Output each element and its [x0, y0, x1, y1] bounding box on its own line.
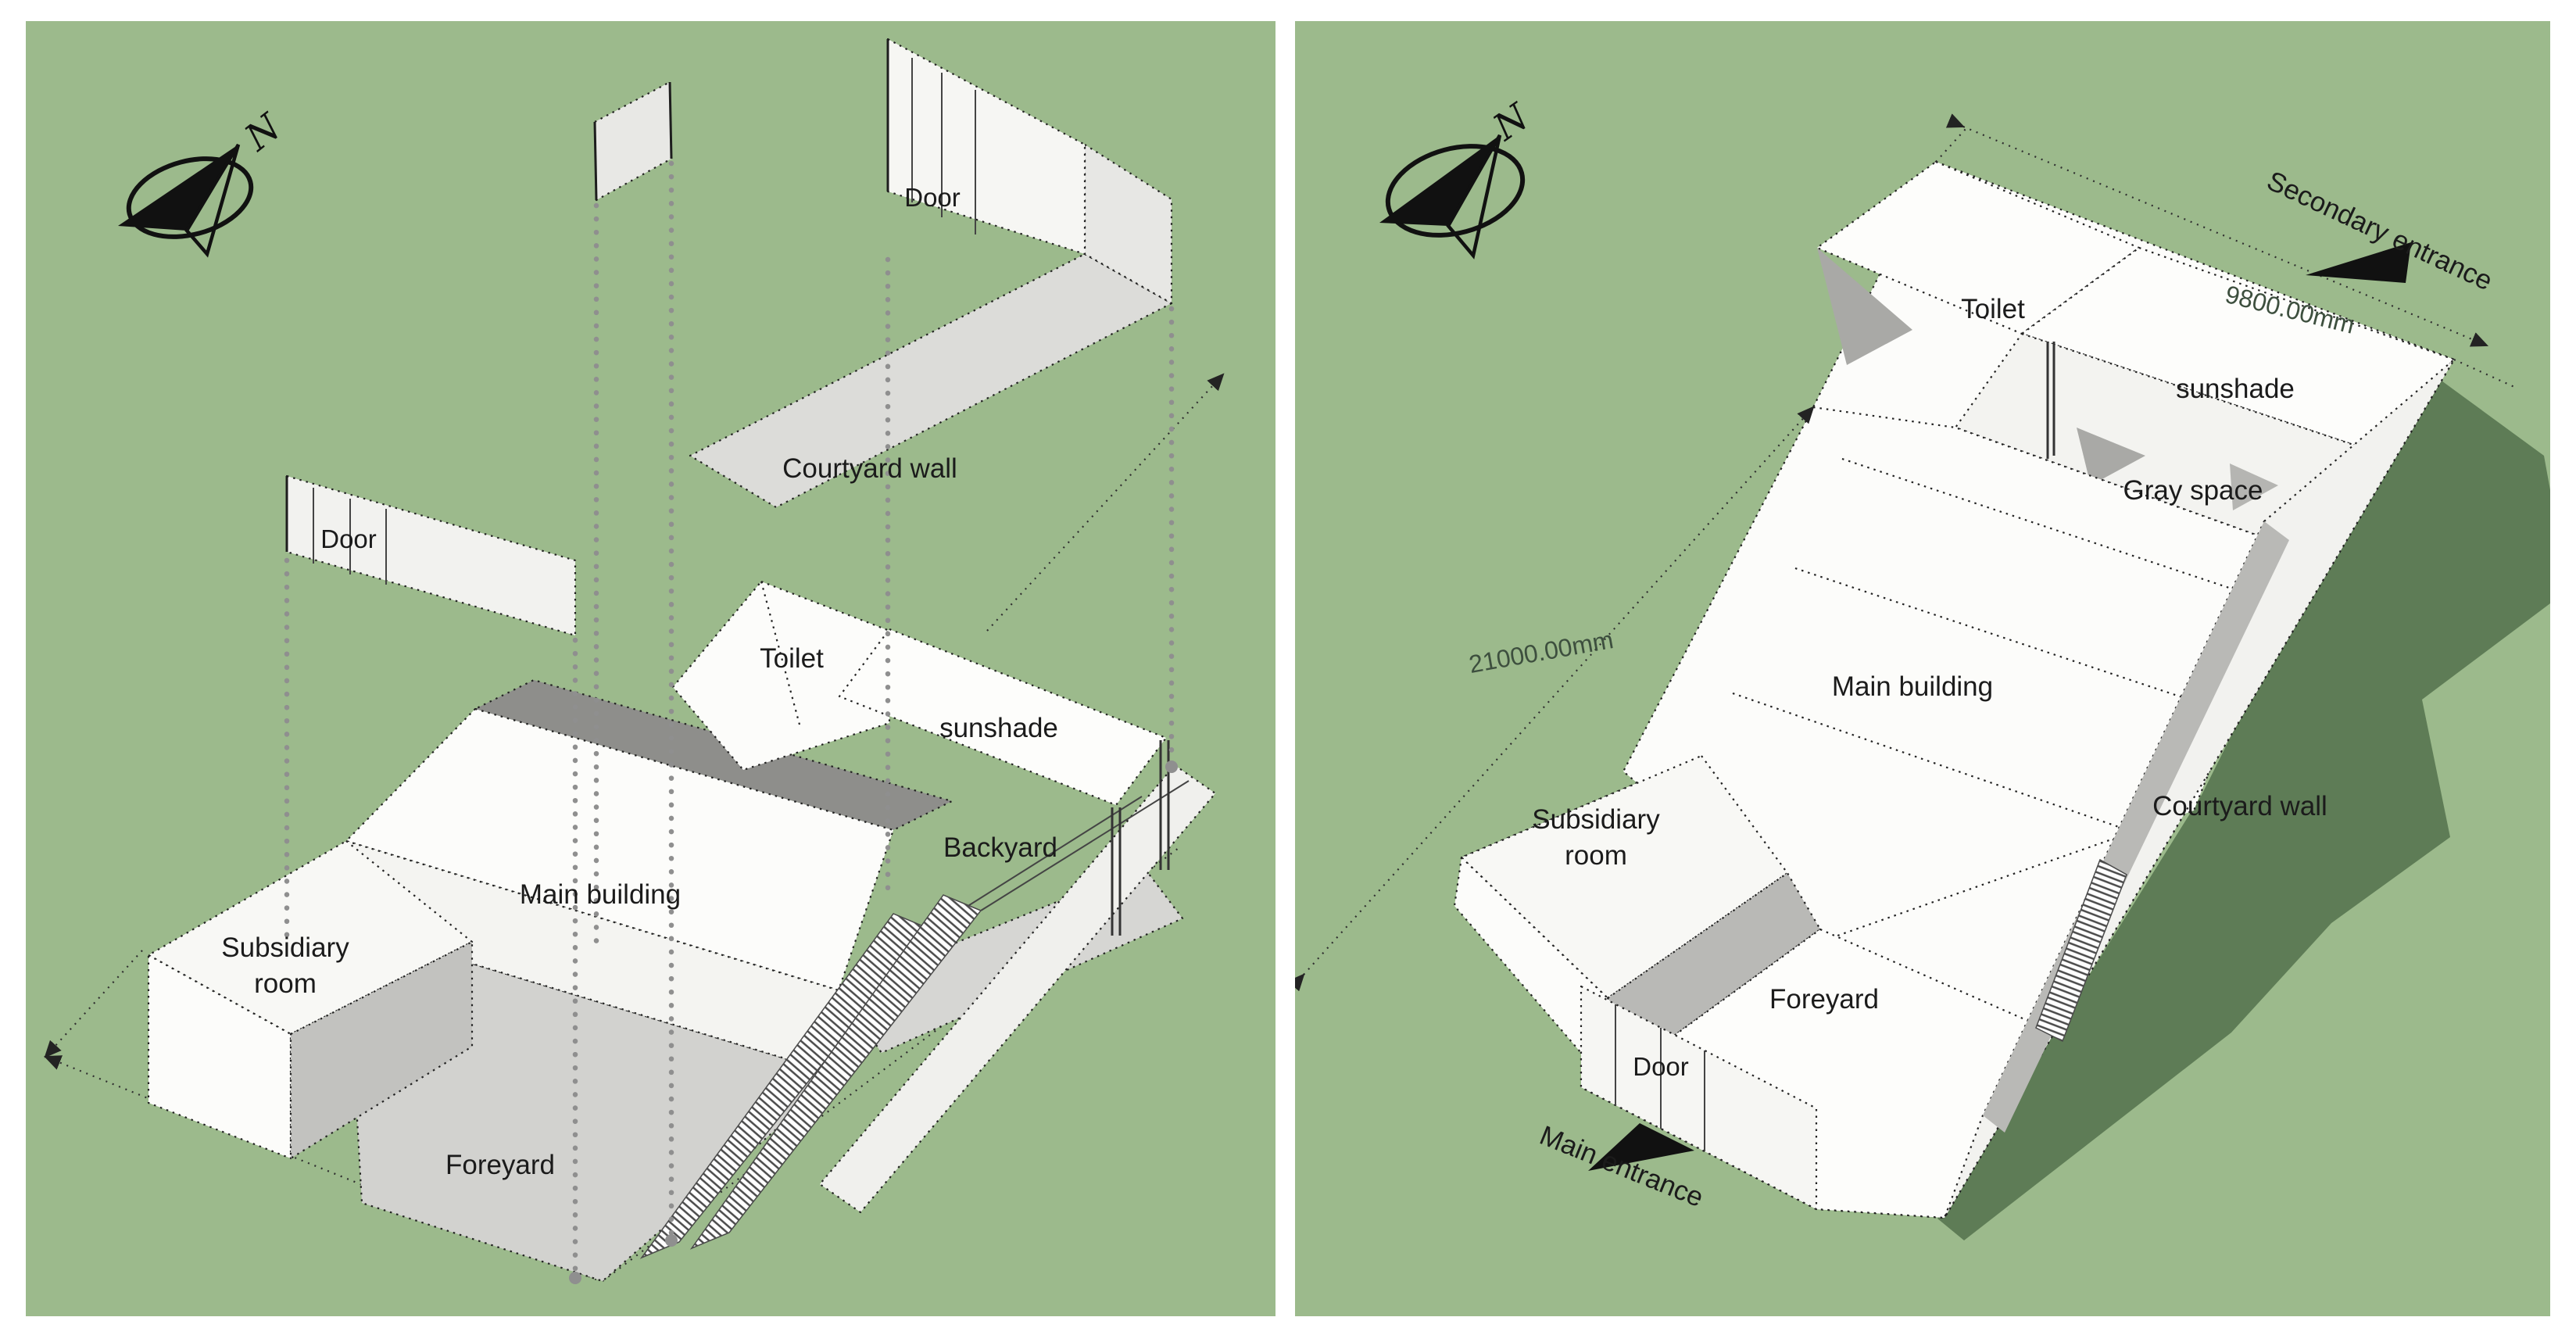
right-panel-assembled-view: 21000.00mm 9800.00mm N Secondary entranc…	[1295, 21, 2550, 1316]
label-toilet: Toilet	[760, 643, 824, 674]
label-foreyard: Foreyard	[445, 1150, 555, 1180]
right-diagram-canvas: 21000.00mm 9800.00mm N Secondary entranc…	[1295, 21, 2550, 1316]
label-main-building: Main building	[520, 879, 681, 910]
label-door: Door	[1633, 1052, 1689, 1081]
left-panel-exploded-view: N Door Courtyard wall Door Toilet sunsha…	[26, 21, 1275, 1316]
label-backyard: Backyard	[943, 832, 1057, 863]
label-gray-space: Gray space	[2123, 475, 2263, 506]
label-foreyard: Foreyard	[1769, 984, 1879, 1015]
label-courtyard-wall: Courtyard wall	[782, 453, 957, 484]
label-toilet: Toilet	[1961, 294, 2025, 324]
label-subsidiary-2: room	[1565, 840, 1627, 871]
label-sunshade: sunshade	[939, 713, 1058, 743]
label-subsidiary-1: Subsidiary	[221, 932, 349, 963]
label-courtyard-wall: Courtyard wall	[2152, 791, 2327, 821]
label-subsidiary-2: room	[254, 968, 317, 999]
left-diagram-canvas: N Door Courtyard wall Door Toilet sunsha…	[26, 21, 1275, 1316]
diagram-page: N Door Courtyard wall Door Toilet sunsha…	[0, 0, 2576, 1335]
label-door-top: Door	[904, 183, 961, 212]
label-door-left: Door	[320, 524, 377, 553]
label-subsidiary-1: Subsidiary	[1532, 804, 1660, 835]
label-main-building: Main building	[1832, 671, 1993, 702]
label-sunshade: sunshade	[2176, 374, 2295, 404]
